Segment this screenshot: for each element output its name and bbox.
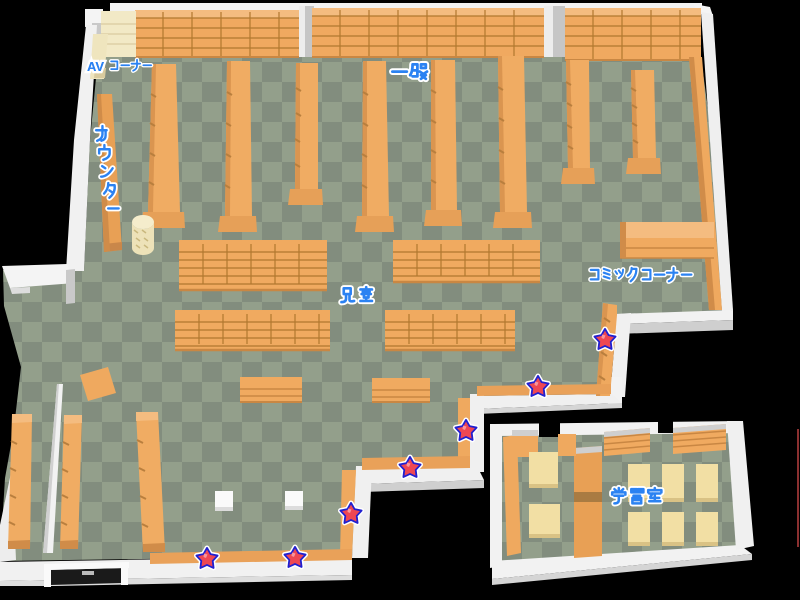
svg-text:AV: AV xyxy=(87,59,104,74)
